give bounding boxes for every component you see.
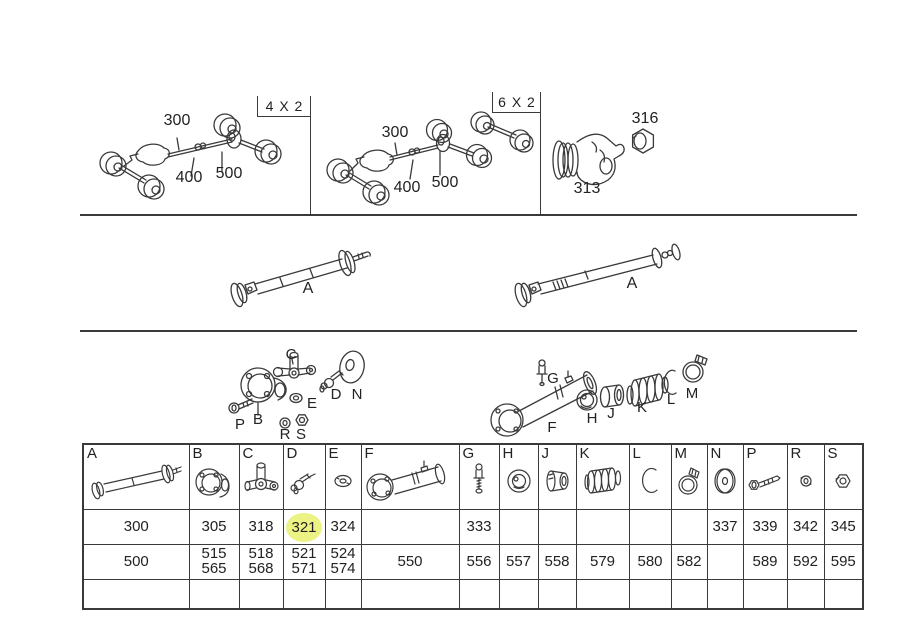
column-letter: E <box>329 445 339 462</box>
part-ref-h: H <box>585 410 599 427</box>
part-number[interactable]: 342 <box>793 519 818 534</box>
col-header-l: L <box>629 444 671 510</box>
link <box>350 157 364 171</box>
column-letter: G <box>463 445 475 462</box>
propeller-shaft-right-drawing <box>505 238 702 310</box>
col-header-k: K <box>576 444 629 510</box>
column-letter: H <box>503 445 514 462</box>
callout-500[interactable]: 500 <box>428 174 462 192</box>
hose-clamp <box>683 355 707 382</box>
locknut-icon <box>795 470 817 492</box>
seal-fitting-icon <box>329 471 357 491</box>
flange-yoke-icon <box>192 459 236 503</box>
panel-divider <box>540 92 541 214</box>
front-axle <box>327 159 389 205</box>
part-number[interactable]: 550 <box>397 554 422 569</box>
part-number[interactable]: 592 <box>793 554 818 569</box>
table-row-500: 500 515 565 518 568 521 571 524 574 550 … <box>83 545 863 580</box>
callout-400[interactable]: 400 <box>172 169 206 187</box>
bearing-icon <box>504 466 534 496</box>
part-number[interactable]: 339 <box>752 519 777 534</box>
callout-400[interactable]: 400 <box>390 179 424 197</box>
part-number[interactable]: 595 <box>831 554 856 569</box>
panel-divider <box>310 96 311 214</box>
part-ref-b: B <box>251 411 265 428</box>
table-row-300: 300 305 318 321 324 333 337 339 342 345 <box>83 510 863 545</box>
col-header-e: E <box>325 444 361 510</box>
callout-500[interactable]: 500 <box>212 165 246 183</box>
part-number[interactable]: 580 <box>637 554 662 569</box>
column-letter: R <box>791 445 802 462</box>
part-ref-c: C <box>284 346 298 363</box>
part-ref-j: J <box>604 405 618 422</box>
col-header-s: S <box>824 444 863 510</box>
column-letter: C <box>243 445 254 462</box>
part-number[interactable]: 515 565 <box>201 546 226 576</box>
part-number[interactable]: 558 <box>544 554 569 569</box>
slip-joint-icon <box>364 457 456 505</box>
hose-clamp-icon <box>675 464 703 498</box>
column-letter: L <box>633 445 641 462</box>
parts-catalog-page: 4 X 2 6 X 2 300 400 500 <box>0 0 900 643</box>
universal-joint-icon <box>243 460 279 502</box>
tag-axle <box>471 112 533 152</box>
section-divider <box>80 330 857 332</box>
washer <box>337 349 367 385</box>
column-letter: S <box>828 445 838 462</box>
col-header-g: G <box>459 444 499 510</box>
col-header-j: J <box>538 444 576 510</box>
part-number[interactable]: 556 <box>466 554 491 569</box>
part-number[interactable]: 557 <box>506 554 531 569</box>
bushing <box>601 385 624 407</box>
part-ref-d: D <box>329 386 343 403</box>
bushing-icon <box>542 466 572 496</box>
part-number[interactable]: 579 <box>590 554 615 569</box>
col-header-a: A <box>83 444 189 510</box>
lock-nut <box>633 129 654 153</box>
column-letter: K <box>580 445 590 462</box>
table-header-row: A B C <box>83 444 863 510</box>
part-ref-n: N <box>350 386 364 403</box>
col-header-m: M <box>671 444 707 510</box>
col-header-n: N <box>707 444 743 510</box>
part-ref-f: F <box>545 419 559 436</box>
part-number[interactable]: 582 <box>676 554 701 569</box>
washer-icon <box>710 465 740 497</box>
bolt <box>229 399 253 413</box>
col-header-c: C <box>239 444 283 510</box>
parts-table: A B C <box>82 443 864 610</box>
snap-ring-icon <box>637 465 663 497</box>
part-number[interactable]: 345 <box>831 519 856 534</box>
rear-axle <box>214 114 281 164</box>
column-letter: P <box>747 445 757 462</box>
transmission <box>136 144 169 165</box>
callout-313[interactable]: 313 <box>568 180 606 198</box>
part-number[interactable]: 500 <box>124 554 149 569</box>
part-number[interactable]: 324 <box>330 519 355 534</box>
rear-axle <box>427 120 492 168</box>
column-letter: B <box>193 445 203 462</box>
flange-yoke <box>241 368 286 415</box>
col-header-r: R <box>787 444 824 510</box>
col-header-d: D <box>283 444 325 510</box>
col-header-h: H <box>499 444 538 510</box>
shaft-ref-a: A <box>298 280 318 298</box>
part-number[interactable]: 524 574 <box>330 546 355 576</box>
table-row-empty <box>83 580 863 609</box>
part-number[interactable]: 518 568 <box>248 546 273 576</box>
column-letter: D <box>287 445 298 462</box>
nut-icon <box>830 468 856 494</box>
part-ref-g: G <box>546 370 560 387</box>
part-ref-s: S <box>294 426 308 443</box>
bolt-icon <box>747 468 783 494</box>
part-number[interactable]: 305 <box>201 519 226 534</box>
part-number[interactable]: 589 <box>752 554 777 569</box>
column-letter: J <box>542 445 550 462</box>
column-letter: A <box>87 445 97 462</box>
part-ref-e: E <box>305 395 319 412</box>
shaft-ref-a: A <box>622 275 642 293</box>
part-number[interactable]: 300 <box>124 519 149 534</box>
callout-300[interactable]: 300 <box>160 112 194 130</box>
part-ref-m: M <box>685 385 699 402</box>
column-letter: N <box>711 445 722 462</box>
column-letter: M <box>675 445 688 462</box>
propeller-shaft-icon <box>88 461 184 501</box>
seal-fitting <box>290 394 302 403</box>
part-number[interactable]: 521 571 <box>291 546 316 576</box>
part-ref-p: P <box>233 416 247 433</box>
part-ref-r: R <box>278 426 292 443</box>
grease-nipple-icon <box>466 461 492 501</box>
part-ref-l: L <box>664 391 678 408</box>
column-letter: F <box>365 445 374 462</box>
boot-icon <box>581 464 625 498</box>
propeller-shaft-left-drawing <box>222 240 387 310</box>
grease-nipple-angled-icon <box>287 464 321 498</box>
part-number[interactable]: 333 <box>466 519 491 534</box>
part-number-highlighted[interactable]: 321 <box>286 513 321 542</box>
part-number[interactable]: 318 <box>248 519 273 534</box>
col-header-f: F <box>361 444 459 510</box>
section-divider <box>80 214 857 216</box>
callout-316[interactable]: 316 <box>626 110 664 128</box>
part-number[interactable]: 337 <box>712 519 737 534</box>
col-header-p: P <box>743 444 787 510</box>
col-header-b: B <box>189 444 239 510</box>
nut <box>296 415 308 425</box>
flange-yoke <box>553 134 624 184</box>
callout-300[interactable]: 300 <box>378 124 412 142</box>
bearing <box>577 390 597 410</box>
transmission <box>360 150 393 171</box>
part-ref-k: K <box>635 399 649 416</box>
